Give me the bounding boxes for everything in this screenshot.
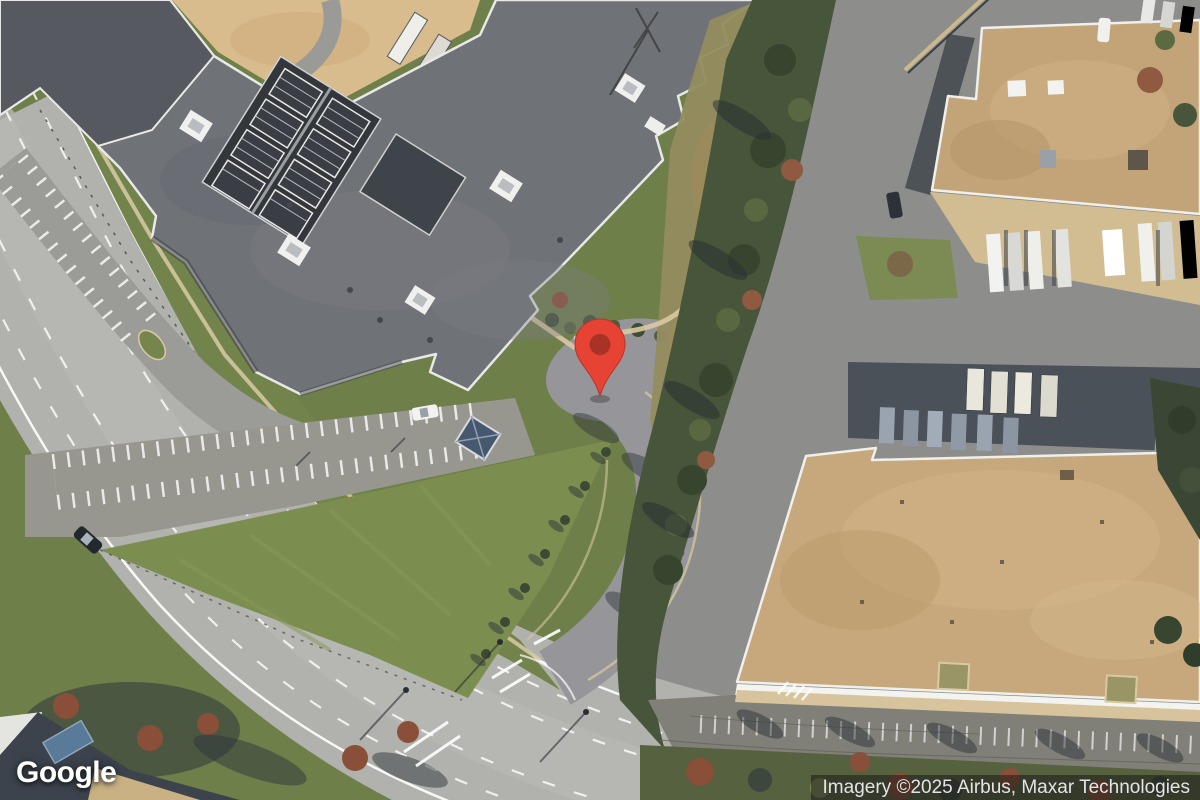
map-pin-icon[interactable] bbox=[571, 316, 629, 400]
satellite-imagery-canvas[interactable] bbox=[0, 0, 1200, 800]
imagery-attribution: Imagery ©2025 Airbus, Maxar Technologies bbox=[811, 775, 1200, 800]
imagery-attribution-text: Imagery ©2025 Airbus, Maxar Technologies bbox=[823, 777, 1190, 799]
map-viewport[interactable]: Google Imagery ©2025 Airbus, Maxar Techn… bbox=[0, 0, 1200, 800]
vehicle-top-right bbox=[1097, 18, 1111, 43]
google-logo[interactable]: Google bbox=[16, 756, 116, 790]
